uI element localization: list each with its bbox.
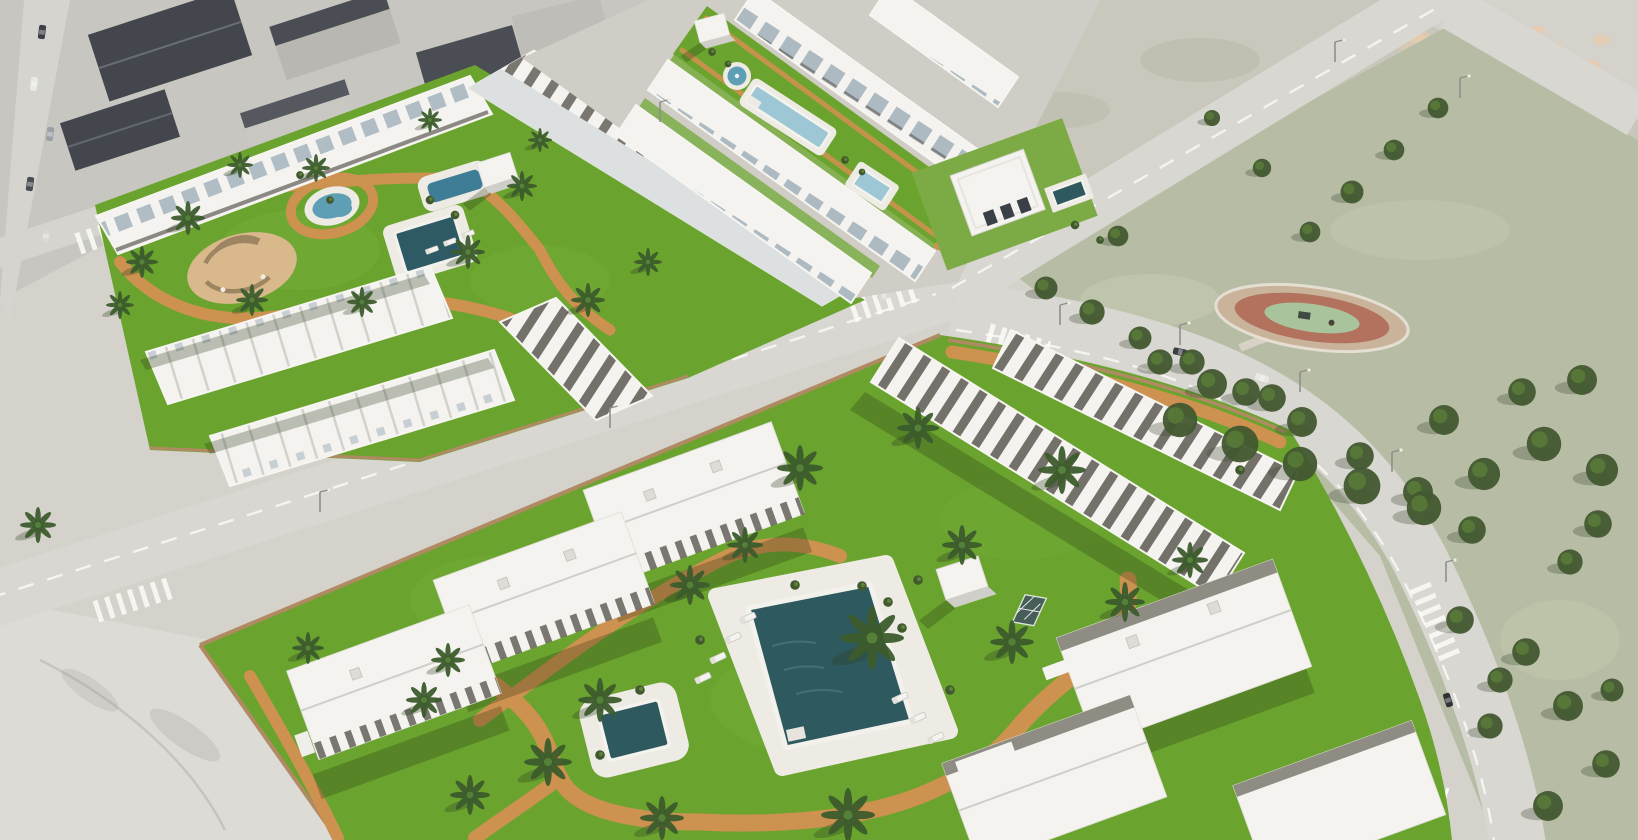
bush bbox=[326, 196, 334, 204]
bush bbox=[695, 635, 705, 645]
bush bbox=[635, 685, 645, 695]
bush bbox=[897, 623, 907, 633]
aerial-render-scene: Aerial 3D architectural rendering of a n… bbox=[0, 0, 1638, 840]
park-grass-patch bbox=[1330, 200, 1510, 260]
bush bbox=[883, 597, 893, 607]
bush bbox=[1235, 465, 1245, 475]
bush bbox=[595, 750, 605, 760]
scene-canvas bbox=[0, 0, 1638, 840]
bush bbox=[1071, 221, 1080, 230]
fountain-jet bbox=[735, 74, 739, 78]
dirt-patch bbox=[1593, 35, 1611, 45]
bush bbox=[857, 581, 867, 591]
park-grass-patch bbox=[1500, 600, 1620, 680]
scrub-mottle bbox=[1140, 38, 1260, 82]
bush bbox=[913, 575, 923, 585]
bush bbox=[725, 61, 732, 68]
bush bbox=[790, 580, 800, 590]
bush bbox=[859, 169, 866, 176]
bush bbox=[426, 196, 435, 205]
bush bbox=[841, 156, 849, 164]
bush bbox=[708, 48, 716, 56]
bush bbox=[451, 211, 460, 220]
bush bbox=[945, 685, 955, 695]
